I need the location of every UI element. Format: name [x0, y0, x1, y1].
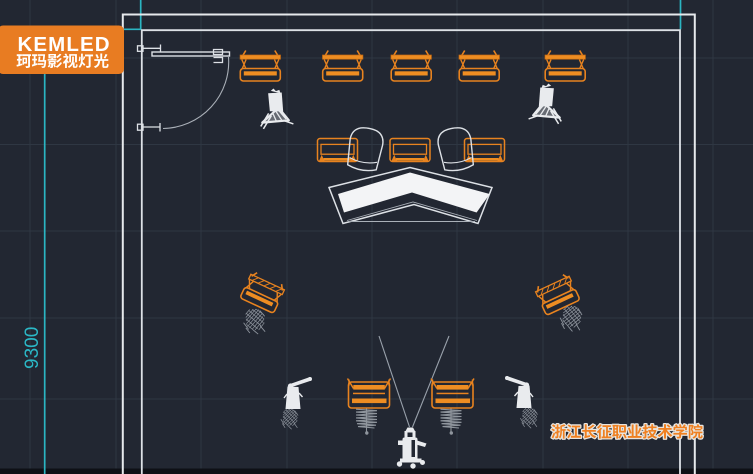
svg-text:KEMLED: KEMLED: [18, 33, 111, 56]
svg-text:9300: 9300: [22, 327, 43, 369]
